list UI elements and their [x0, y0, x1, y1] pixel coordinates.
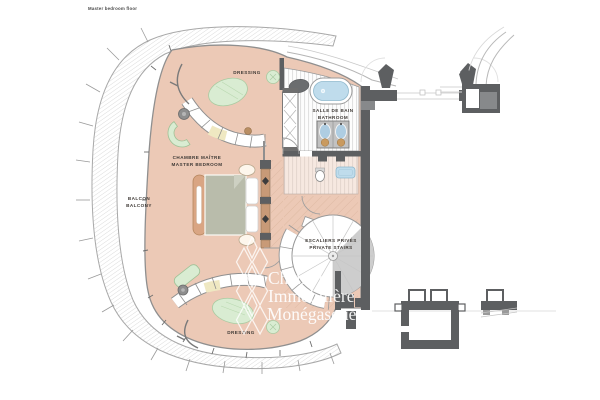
wall-segment — [283, 151, 362, 157]
floor-plan: Master bedroom floor — [0, 0, 600, 400]
floorplan-screenshot: Master bedroom floor — [0, 0, 600, 400]
toilet — [316, 168, 325, 182]
nightstand — [239, 165, 255, 176]
stool — [179, 109, 190, 120]
pillow — [246, 178, 258, 204]
section-shaft — [395, 290, 465, 349]
label-bathroom-fr: SALLE DE BAIN — [312, 108, 353, 113]
watermark-line1: Chambre — [268, 268, 332, 288]
plant — [267, 71, 280, 84]
label-stairs-fr: ESCALIERS PRIVÉS — [305, 236, 357, 243]
label-bedroom-en: MASTER BEDROOM — [172, 162, 223, 167]
watermark-line3: Monégasque — [267, 304, 357, 324]
label-dressing-top: DRESSING — [233, 70, 261, 75]
label-balcony-en: BALCONY — [126, 203, 152, 208]
nightstand — [239, 235, 255, 246]
label-bedroom-fr: CHAMBRE MAÎTRE — [173, 153, 222, 160]
label-stairs-en: PRIVATE STAIRS — [309, 245, 352, 250]
closet-lattice — [283, 88, 299, 152]
label-dressing-bottom: DRESSING — [227, 330, 255, 335]
bathtub — [310, 78, 352, 104]
vanity-sinks — [317, 121, 349, 148]
right-wall — [361, 86, 370, 310]
pillow — [246, 206, 258, 232]
shower-tray — [336, 167, 355, 178]
wall-segment — [280, 58, 285, 90]
footboard-slot — [197, 186, 202, 224]
wall-stub — [336, 157, 345, 162]
section-top-right — [440, 27, 514, 113]
duvet — [205, 175, 246, 235]
watermark-line2: Immobilière — [268, 286, 355, 306]
door-gap — [300, 151, 312, 157]
label-bathroom-en: BATHROOM — [318, 115, 348, 120]
stool — [178, 285, 188, 295]
label-balcony-fr: BALCON — [128, 196, 151, 201]
wall-stub — [318, 157, 327, 162]
page-title: Master bedroom floor — [88, 6, 137, 11]
side-table — [245, 128, 252, 135]
section-small — [481, 290, 517, 317]
